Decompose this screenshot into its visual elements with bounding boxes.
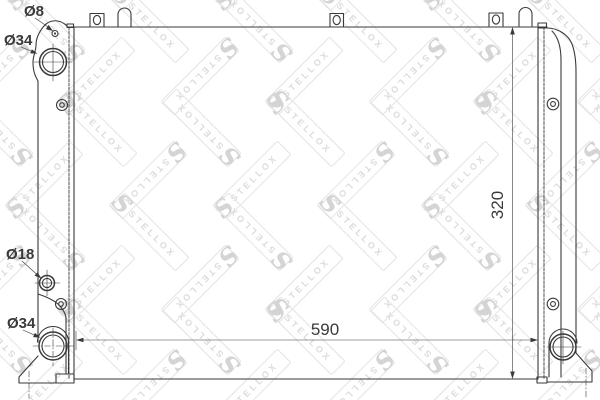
width-dim-text: 590 xyxy=(311,320,339,339)
dimension-width-590: 590 xyxy=(76,320,538,350)
bracket-tab-left-hole xyxy=(93,15,100,24)
left-seam-cap xyxy=(67,24,74,28)
grommet-left-bottom-hole xyxy=(59,302,64,307)
dome-tab-left xyxy=(118,8,131,27)
bracket-tab-center-hole xyxy=(333,15,340,24)
grommet-right-bottom xyxy=(547,298,559,310)
right-tank-inner-seam xyxy=(552,31,561,377)
outlet-label: Ø34 xyxy=(7,315,36,332)
dome-tab-right xyxy=(519,8,532,27)
inlet-leader-arrow xyxy=(30,49,37,53)
grommet-right-top-hole xyxy=(551,102,556,107)
right-foot-bracket xyxy=(547,353,592,382)
drain-label: Ø18 xyxy=(6,246,34,263)
drain-crosshair xyxy=(35,270,60,296)
inlet-label: Ø34 xyxy=(4,32,33,49)
label-drain-dia: Ø18 xyxy=(6,246,42,279)
label-top-hole-dia: Ø8 xyxy=(24,3,53,31)
right-tank xyxy=(547,28,592,398)
radiator-drawing-page: SSTELLOXSSTELLOXSSTELLOXSSTELLOXSSTELLOX… xyxy=(0,0,600,400)
mounting-tabs xyxy=(90,8,532,28)
top-hole-center xyxy=(54,32,56,34)
grommet-left-top xyxy=(57,100,68,111)
drain-leader xyxy=(22,261,37,275)
radiator-technical-drawing: 320 590 Ø8 Ø34 Ø18 Ø34 xyxy=(0,0,600,400)
bracket-tab-right-hole xyxy=(492,15,499,24)
height-dim-text: 320 xyxy=(488,191,507,219)
width-dim-arrow-left xyxy=(76,338,84,343)
width-dim-arrow-right xyxy=(531,338,539,343)
radiator-core xyxy=(67,23,547,383)
height-dim-arrow-top xyxy=(510,27,515,35)
label-inlet-dia: Ø34 xyxy=(4,32,38,54)
left-tank xyxy=(19,21,74,398)
grommet-right-top xyxy=(547,98,559,110)
grommet-right-bottom-hole xyxy=(551,302,556,307)
dimension-height-320: 320 xyxy=(488,27,515,379)
label-outlet-dia: Ø34 xyxy=(7,315,41,338)
height-dim-arrow-bottom xyxy=(510,372,515,380)
top-hole-label: Ø8 xyxy=(24,3,44,20)
grommet-left-top-hole xyxy=(60,103,65,108)
